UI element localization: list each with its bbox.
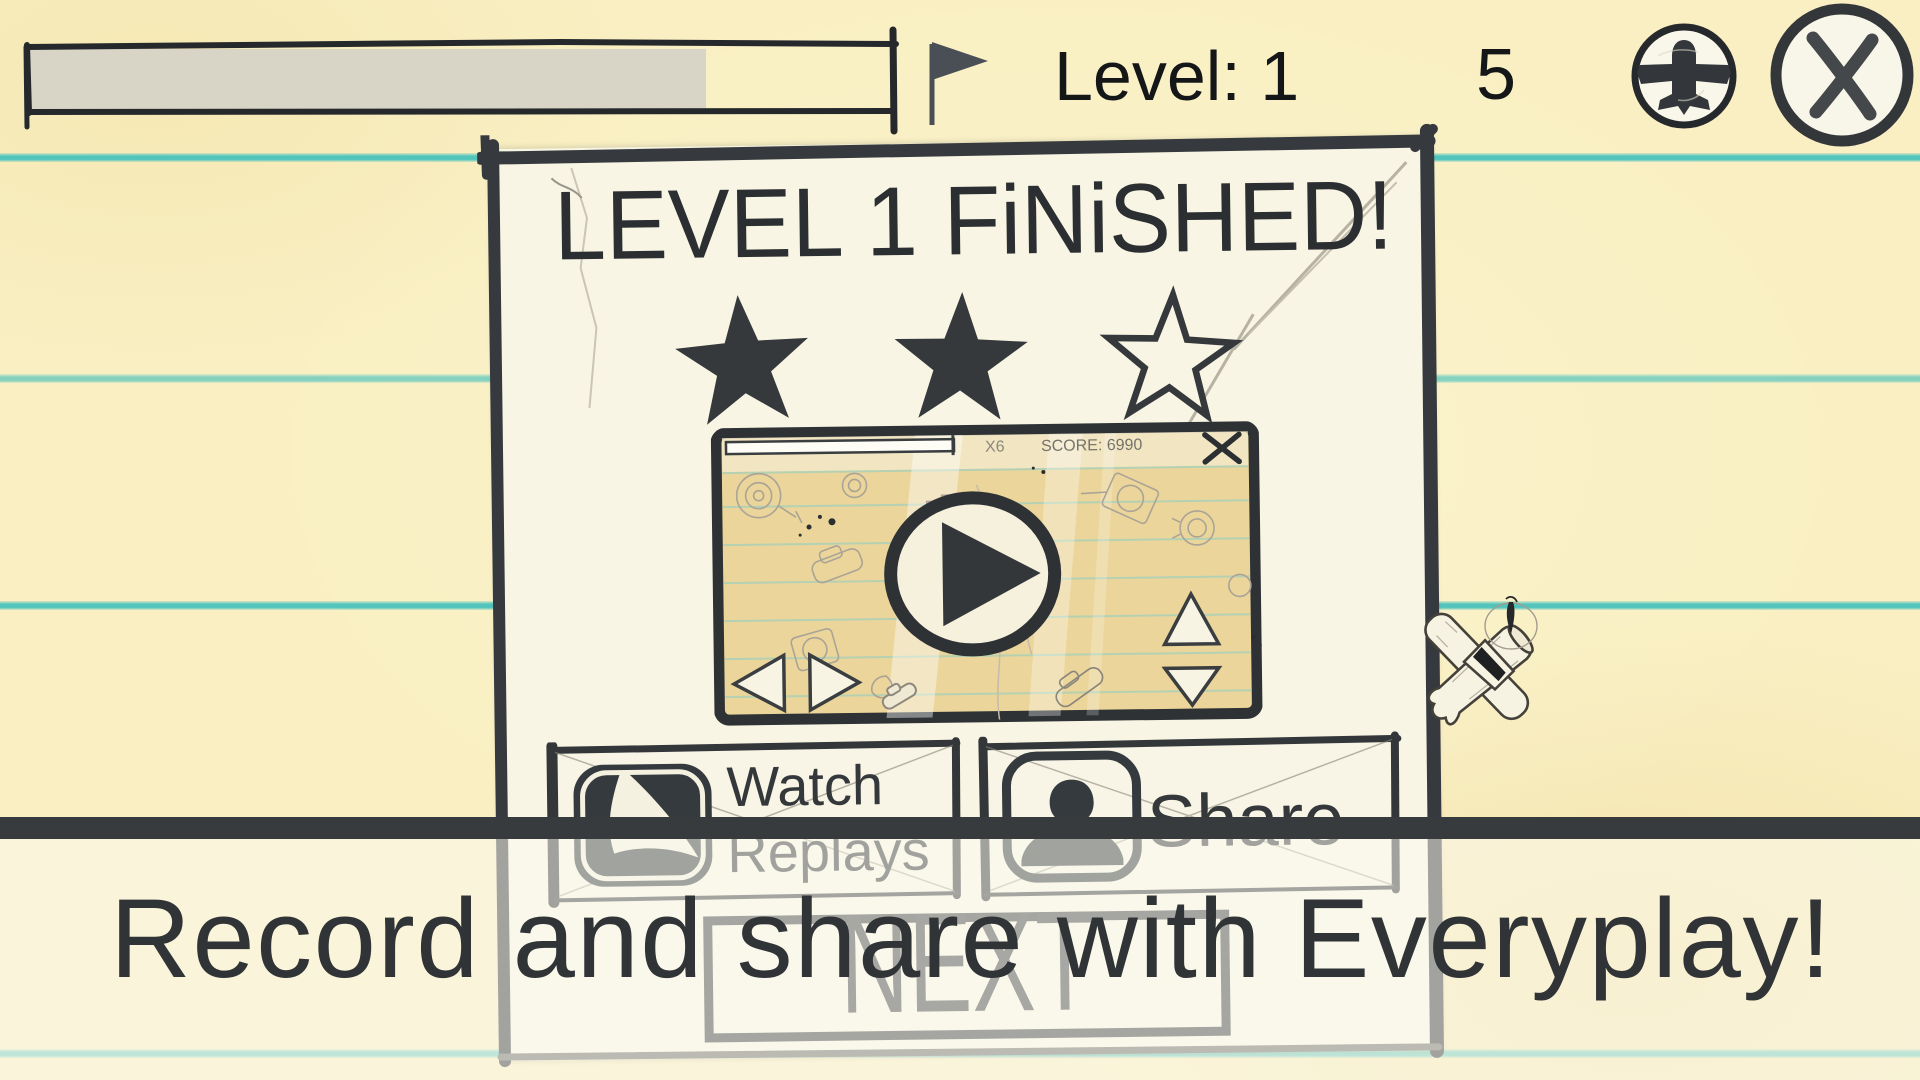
svg-text:X6: X6 bbox=[985, 438, 1005, 455]
svg-text:SCORE: 6990: SCORE: 6990 bbox=[1041, 437, 1143, 455]
svg-text:Watch: Watch bbox=[726, 753, 883, 818]
